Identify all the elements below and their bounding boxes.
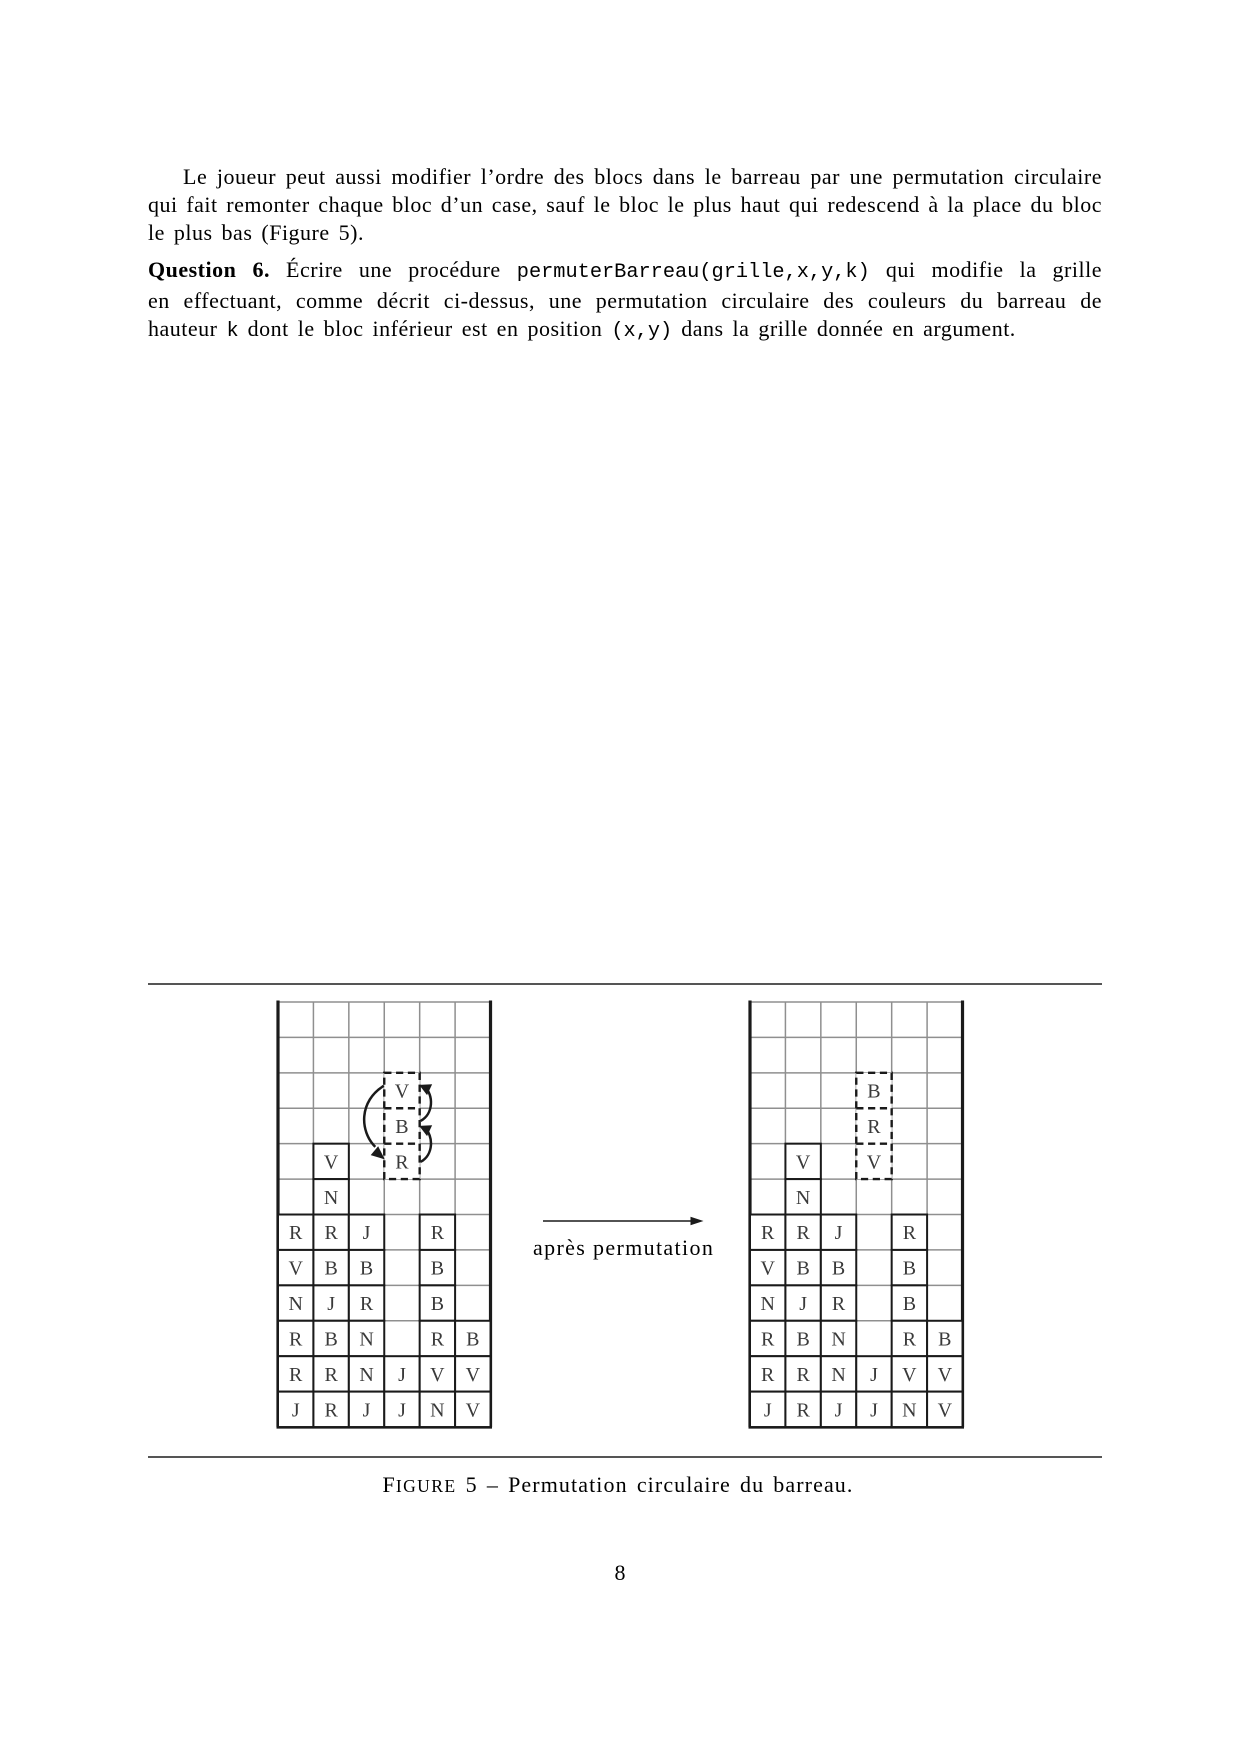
svg-text:V: V: [796, 1151, 811, 1173]
svg-text:R: R: [796, 1399, 810, 1421]
svg-text:N: N: [288, 1293, 302, 1315]
svg-text:B: B: [796, 1257, 809, 1279]
svg-text:V: V: [465, 1399, 480, 1421]
svg-text:V: V: [465, 1364, 480, 1386]
svg-text:R: R: [324, 1222, 338, 1244]
svg-text:R: R: [832, 1293, 846, 1315]
svg-text:N: N: [796, 1186, 810, 1208]
svg-text:V: V: [867, 1151, 882, 1173]
svg-text:R: R: [289, 1364, 303, 1386]
svg-text:R: R: [796, 1222, 810, 1244]
svg-text:J: J: [764, 1399, 772, 1421]
svg-text:J: J: [870, 1364, 878, 1386]
svg-text:J: J: [327, 1293, 335, 1315]
svg-text:B: B: [903, 1293, 916, 1315]
svg-text:B: B: [324, 1328, 337, 1350]
svg-text:R: R: [761, 1222, 775, 1244]
svg-text:B: B: [832, 1257, 845, 1279]
svg-text:R: R: [867, 1116, 881, 1138]
svg-text:J: J: [362, 1399, 370, 1421]
svg-text:N: N: [324, 1186, 338, 1208]
svg-text:J: J: [835, 1222, 843, 1244]
svg-text:B: B: [324, 1257, 337, 1279]
svg-text:R: R: [324, 1399, 338, 1421]
svg-text:B: B: [359, 1257, 372, 1279]
svg-text:J: J: [835, 1399, 843, 1421]
svg-text:R: R: [289, 1328, 303, 1350]
svg-text:V: V: [430, 1364, 445, 1386]
svg-text:R: R: [903, 1222, 917, 1244]
svg-text:R: R: [796, 1364, 810, 1386]
svg-text:B: B: [430, 1257, 443, 1279]
svg-text:V: V: [760, 1257, 775, 1279]
svg-text:J: J: [291, 1399, 299, 1421]
svg-text:R: R: [430, 1222, 444, 1244]
svg-text:N: N: [359, 1328, 373, 1350]
svg-text:J: J: [398, 1399, 406, 1421]
svg-text:N: N: [831, 1364, 845, 1386]
svg-text:J: J: [870, 1399, 878, 1421]
svg-text:B: B: [938, 1328, 951, 1350]
svg-text:R: R: [359, 1293, 373, 1315]
svg-text:V: V: [937, 1364, 952, 1386]
svg-text:R: R: [324, 1364, 338, 1386]
svg-text:N: N: [902, 1399, 916, 1421]
svg-text:J: J: [799, 1293, 807, 1315]
svg-text:B: B: [395, 1116, 408, 1138]
svg-text:R: R: [761, 1328, 775, 1350]
svg-text:R: R: [430, 1328, 444, 1350]
svg-text:R: R: [903, 1328, 917, 1350]
svg-text:V: V: [937, 1399, 952, 1421]
svg-text:J: J: [362, 1222, 370, 1244]
svg-text:J: J: [398, 1364, 406, 1386]
svg-text:V: V: [394, 1080, 409, 1102]
svg-text:N: N: [831, 1328, 845, 1350]
svg-text:B: B: [466, 1328, 479, 1350]
svg-text:B: B: [903, 1257, 916, 1279]
svg-text:R: R: [289, 1222, 303, 1244]
svg-text:R: R: [761, 1364, 775, 1386]
svg-text:N: N: [359, 1364, 373, 1386]
svg-text:R: R: [395, 1151, 409, 1173]
svg-text:N: N: [760, 1293, 774, 1315]
svg-text:B: B: [796, 1328, 809, 1350]
svg-text:N: N: [430, 1399, 444, 1421]
svg-text:V: V: [324, 1151, 339, 1173]
svg-text:B: B: [430, 1293, 443, 1315]
svg-text:B: B: [867, 1080, 880, 1102]
svg-text:V: V: [902, 1364, 917, 1386]
svg-text:V: V: [288, 1257, 303, 1279]
